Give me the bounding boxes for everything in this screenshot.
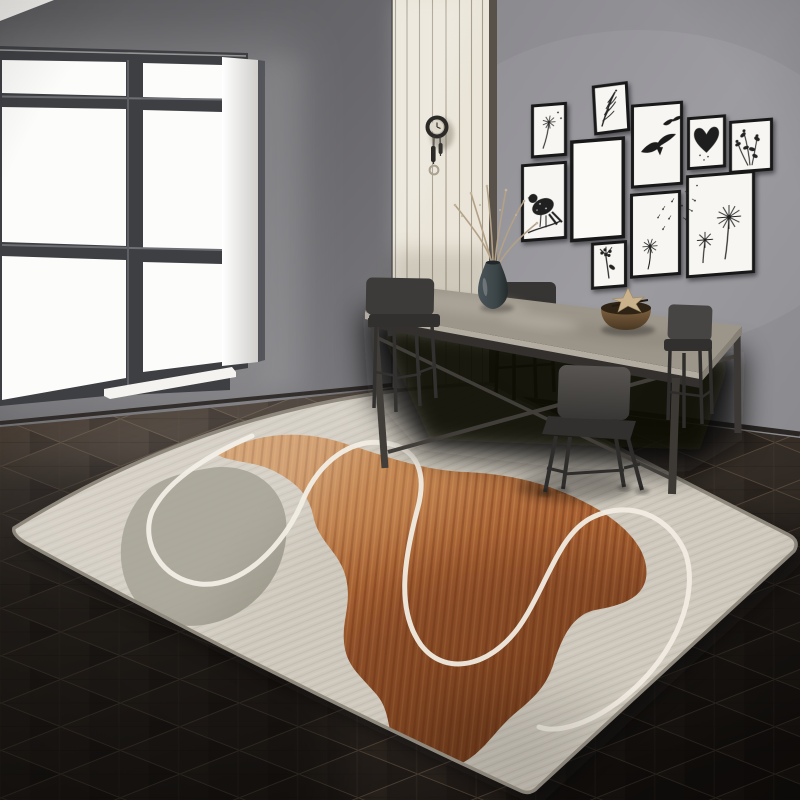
dining-room-scene bbox=[0, 0, 800, 800]
room-photo bbox=[0, 0, 800, 800]
photo-vignette bbox=[0, 0, 800, 800]
